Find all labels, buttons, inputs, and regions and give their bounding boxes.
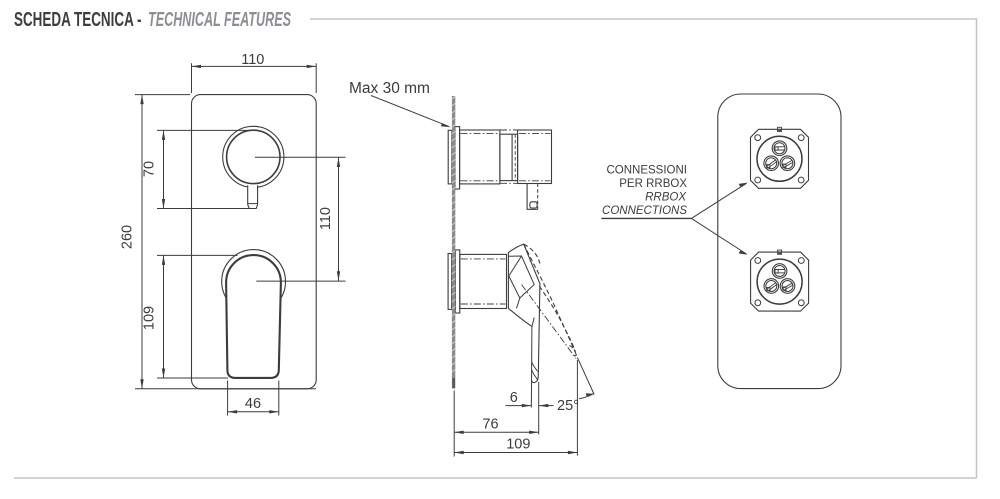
svg-text:260: 260: [120, 225, 136, 249]
svg-text:RRBOX: RRBOX: [645, 192, 687, 204]
svg-text:109: 109: [142, 306, 158, 330]
svg-text:CONNECTIONS: CONNECTIONS: [602, 205, 687, 217]
svg-text:CONNESSIONI: CONNESSIONI: [606, 165, 687, 177]
svg-text:PER RRBOX: PER RRBOX: [619, 178, 687, 190]
svg-text:110: 110: [241, 52, 264, 68]
svg-text:TECHNICAL FEATURES: TECHNICAL FEATURES: [148, 8, 291, 31]
svg-text:Max 30 mm: Max 30 mm: [349, 80, 430, 97]
svg-text:110: 110: [318, 207, 334, 230]
svg-text:109: 109: [506, 437, 530, 453]
svg-text:76: 76: [482, 417, 498, 433]
svg-text:25°: 25°: [557, 398, 579, 414]
svg-text:6: 6: [510, 390, 518, 406]
svg-text:70: 70: [142, 161, 158, 177]
svg-text:46: 46: [245, 396, 261, 412]
svg-text:SCHEDA TECNICA -: SCHEDA TECNICA -: [14, 8, 142, 31]
